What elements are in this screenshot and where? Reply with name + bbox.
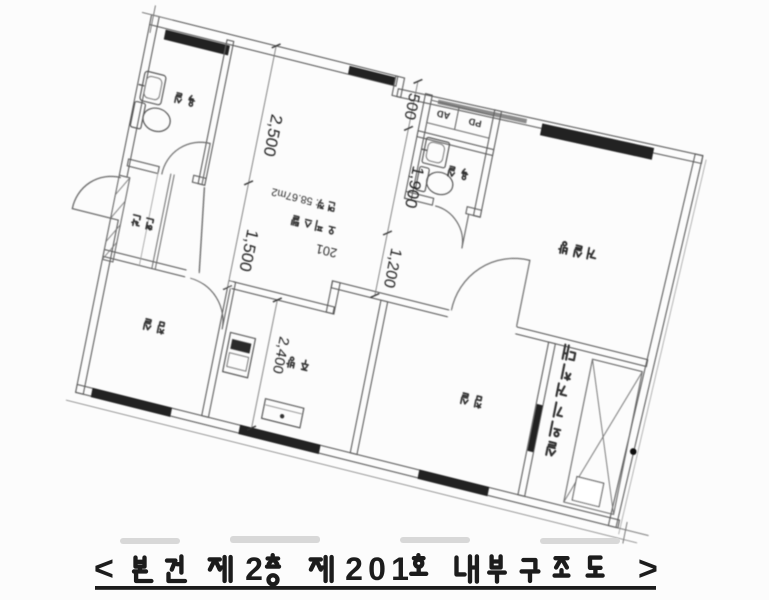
svg-text:2: 2 [345,551,363,587]
svg-text:<: < [94,550,114,588]
svg-text:0: 0 [368,551,386,587]
svg-text:>: > [638,550,658,588]
svg-text:1: 1 [391,551,409,587]
svg-text:2: 2 [245,551,263,587]
